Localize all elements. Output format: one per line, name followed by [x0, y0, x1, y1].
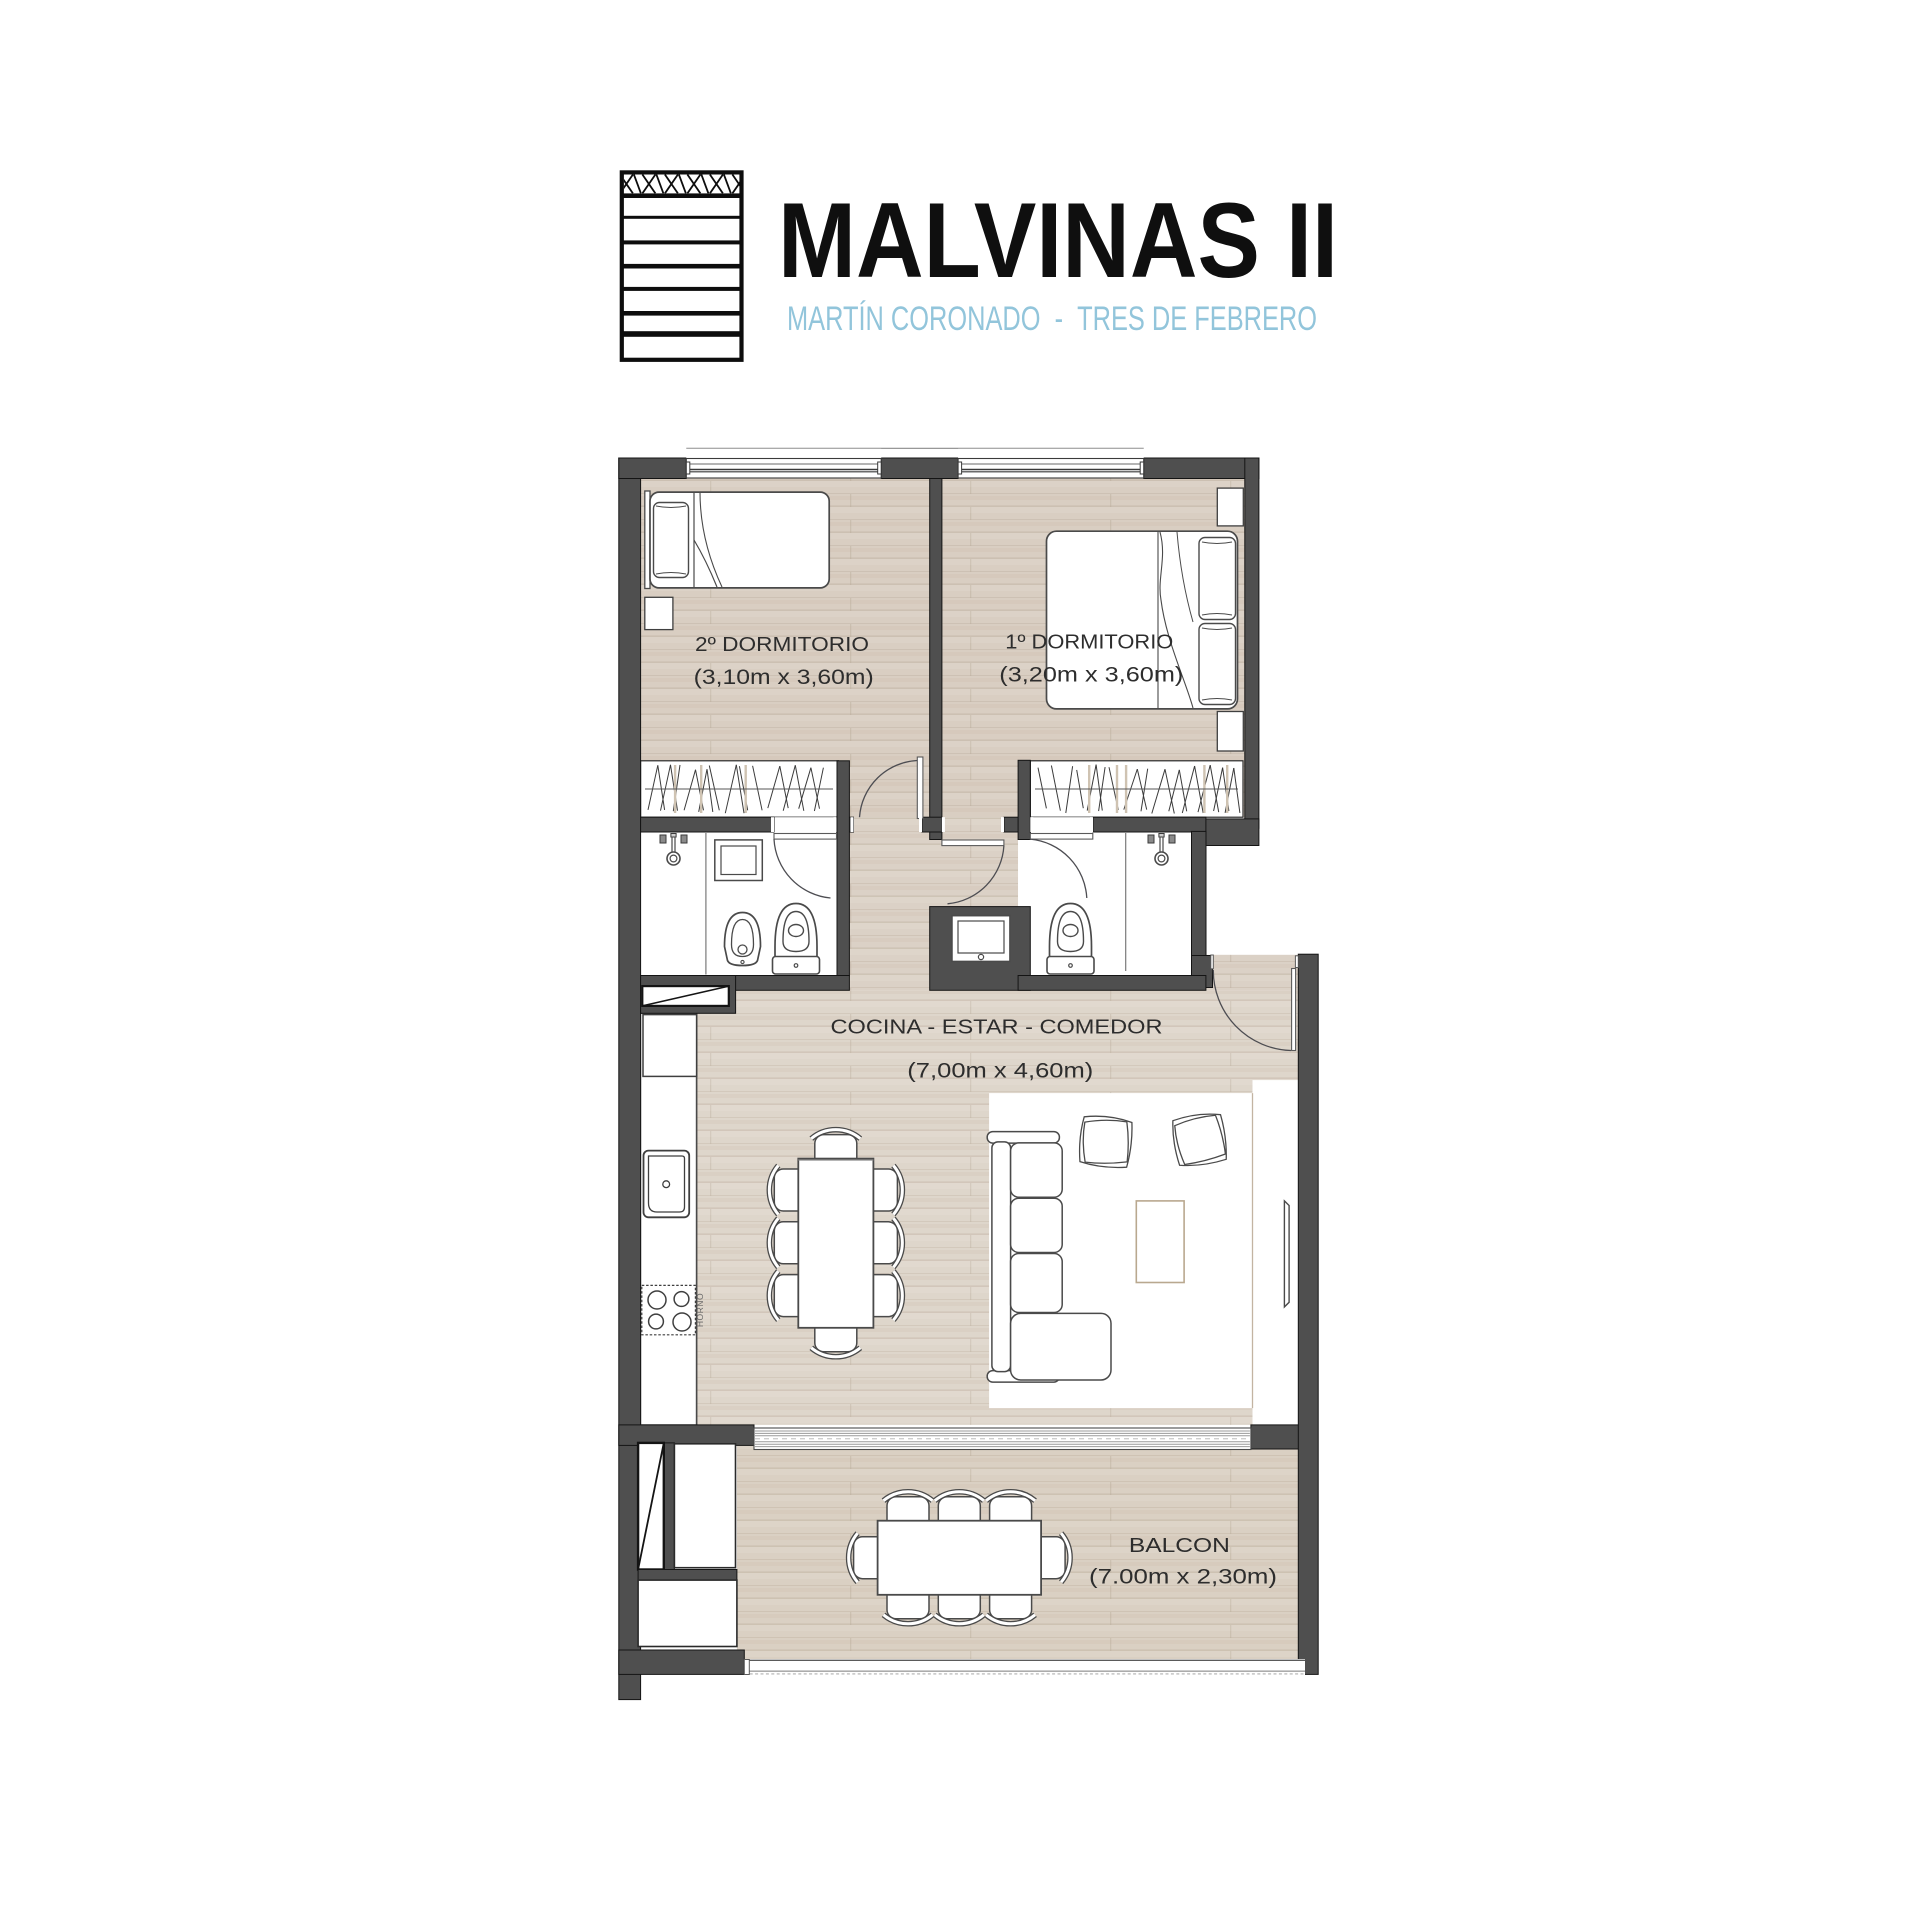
svg-text:MALVINAS II: MALVINAS II — [778, 180, 1338, 300]
svg-text:1º DORMITORIO: 1º DORMITORIO — [1005, 631, 1173, 654]
svg-text:MARTÍN CORONADO - TRES DE FE: MARTÍN CORONADO - TRES DE FEBRERO — [787, 300, 1317, 338]
svg-text:(7,00m x 4,60m): (7,00m x 4,60m) — [907, 1059, 1093, 1083]
svg-text:(3,10m x 3,60m): (3,10m x 3,60m) — [694, 665, 874, 689]
svg-text:(3,20m x 3,60m): (3,20m x 3,60m) — [999, 663, 1183, 687]
svg-text:BALCON: BALCON — [1129, 1534, 1230, 1557]
svg-text:HORNO: HORNO — [695, 1293, 705, 1327]
svg-text:2º DORMITORIO: 2º DORMITORIO — [695, 633, 869, 656]
svg-text:COCINA - ESTAR - COMEDOR: COCINA - ESTAR - COMEDOR — [831, 1016, 1163, 1039]
svg-text:(7.00m x 2,30m): (7.00m x 2,30m) — [1089, 1565, 1277, 1589]
